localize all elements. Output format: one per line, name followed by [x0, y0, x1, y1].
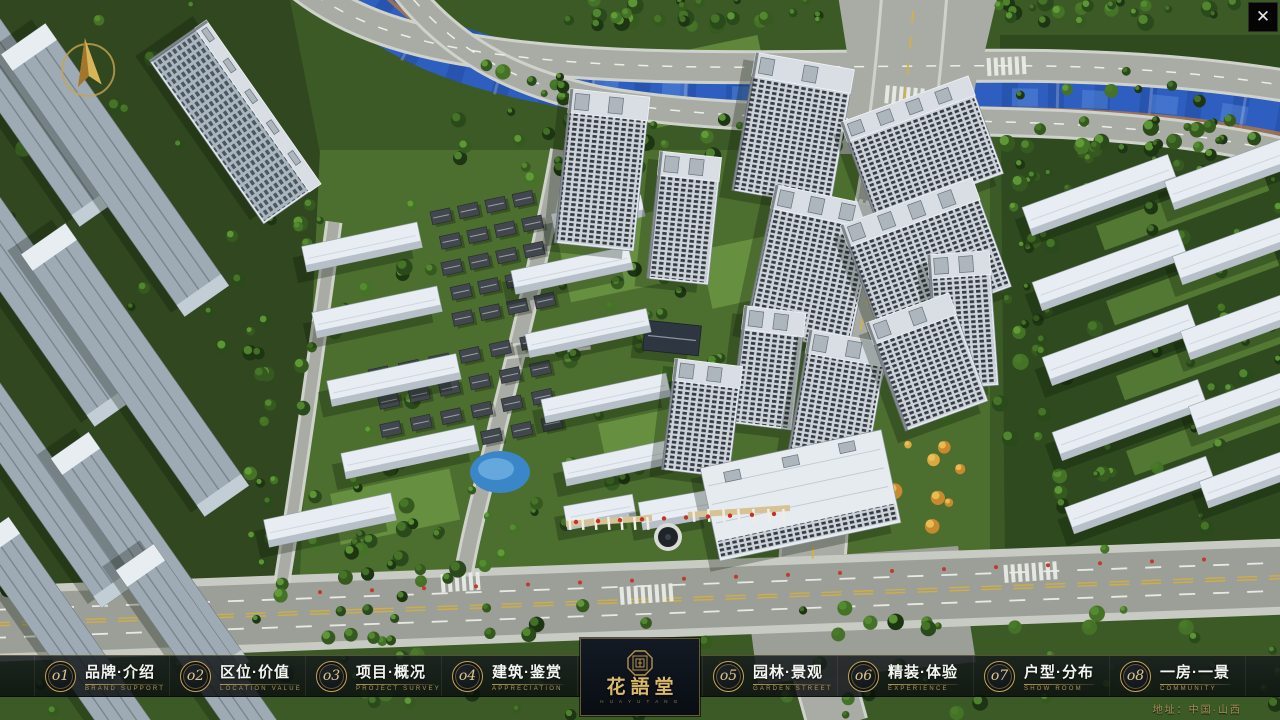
nav-item-location-value[interactable]: o2区位·价值LOCATION VALUE — [170, 656, 306, 696]
logo-title: 花語堂 — [601, 677, 678, 698]
nav-item-label-en: PROJECT SURVEY — [356, 686, 435, 692]
nav-item-architecture[interactable]: o4建筑·鉴赏APPRECIATION — [442, 656, 578, 696]
nav-item-label-en: EXPERIENCE — [888, 686, 958, 692]
nav-item-label-en: GARDEN STREET — [753, 686, 831, 692]
nav-item-labels: 园林·景观GARDEN STREET — [753, 661, 831, 692]
gold-divider — [220, 684, 299, 685]
nav-item-label-zh: 品牌·介绍 — [85, 661, 163, 682]
nav-item-labels: 项目·概况PROJECT SURVEY — [356, 661, 435, 692]
nav-item-labels: 一房·一景COMMUNITY — [1160, 661, 1230, 692]
nav-item-labels: 精装·体验EXPERIENCE — [888, 661, 958, 692]
nav-item-label-en: BRAND SUPPORT — [85, 686, 163, 692]
logo-subtext: H U A Y U T A N G — [600, 699, 679, 704]
gold-divider — [1024, 684, 1094, 685]
gold-divider — [1160, 684, 1230, 685]
nav-group-right: o5园林·景观GARDEN STREETo6精装·体验EXPERIENCEo7户… — [702, 656, 1246, 696]
gold-divider — [753, 684, 831, 685]
nav-item-labels: 区位·价值LOCATION VALUE — [220, 661, 299, 692]
navbar-left-pad — [0, 656, 34, 696]
project-logo-panel[interactable]: 花語堂 H U A Y U T A N G — [580, 638, 700, 716]
nav-item-number-badge: o7 — [984, 661, 1015, 692]
seal-icon — [627, 650, 653, 676]
nav-item-floorplan-distribution[interactable]: o7户型·分布SHOW ROOM — [974, 656, 1110, 696]
nav-item-label-zh: 一房·一景 — [1160, 661, 1230, 682]
nav-item-label-en: COMMUNITY — [1160, 686, 1230, 692]
gold-divider — [356, 684, 435, 685]
nav-item-label-en: SHOW ROOM — [1024, 686, 1094, 692]
close-button[interactable]: ✕ — [1248, 2, 1278, 32]
nav-item-label-zh: 户型·分布 — [1024, 661, 1094, 682]
nav-item-number-badge: o5 — [713, 661, 744, 692]
nav-item-brand-intro[interactable]: o1品牌·介绍BRAND SUPPORT — [34, 656, 170, 696]
nav-item-number-badge: o8 — [1120, 661, 1151, 692]
nav-item-interior-experience[interactable]: o6精装·体验EXPERIENCE — [838, 656, 974, 696]
nav-item-label-zh: 园林·景观 — [753, 661, 831, 682]
nav-item-number-badge: o6 — [848, 661, 879, 692]
nav-item-label-en: LOCATION VALUE — [220, 686, 299, 692]
nav-item-labels: 品牌·介绍BRAND SUPPORT — [85, 661, 163, 692]
nav-item-number-badge: o1 — [45, 661, 76, 692]
nav-group-left: o1品牌·介绍BRAND SUPPORTo2区位·价值LOCATION VALU… — [34, 656, 578, 696]
gold-divider — [85, 684, 163, 685]
scene-element — [635, 150, 722, 294]
nav-item-label-zh: 建筑·鉴赏 — [492, 661, 563, 682]
nav-item-label-zh: 精装·体验 — [888, 661, 958, 682]
presentation-window: ✕ o1品牌·介绍BRAND SUPPORTo2区位·价值LOCATION VA… — [0, 0, 1280, 720]
nav-item-number-badge: o4 — [452, 661, 483, 692]
nav-item-room-view[interactable]: o8一房·一景COMMUNITY — [1110, 656, 1246, 696]
nav-item-project-survey[interactable]: o3项目·概况PROJECT SURVEY — [306, 656, 442, 696]
nav-item-number-badge: o2 — [180, 661, 211, 692]
nav-item-labels: 户型·分布SHOW ROOM — [1024, 661, 1094, 692]
gold-divider — [888, 684, 958, 685]
nav-item-label-zh: 项目·概况 — [356, 661, 435, 682]
masterplan-3d-map[interactable] — [0, 0, 1280, 720]
nav-item-garden-landscape[interactable]: o5园林·景观GARDEN STREET — [702, 656, 838, 696]
scene-element — [542, 88, 650, 261]
address-text: 地址：中国·山西 — [1153, 701, 1242, 716]
nav-item-number-badge: o3 — [316, 661, 347, 692]
nav-item-label-zh: 区位·价值 — [220, 661, 299, 682]
gold-divider — [492, 684, 563, 685]
nav-item-label-en: APPRECIATION — [492, 686, 563, 692]
nav-item-labels: 建筑·鉴赏APPRECIATION — [492, 661, 563, 692]
